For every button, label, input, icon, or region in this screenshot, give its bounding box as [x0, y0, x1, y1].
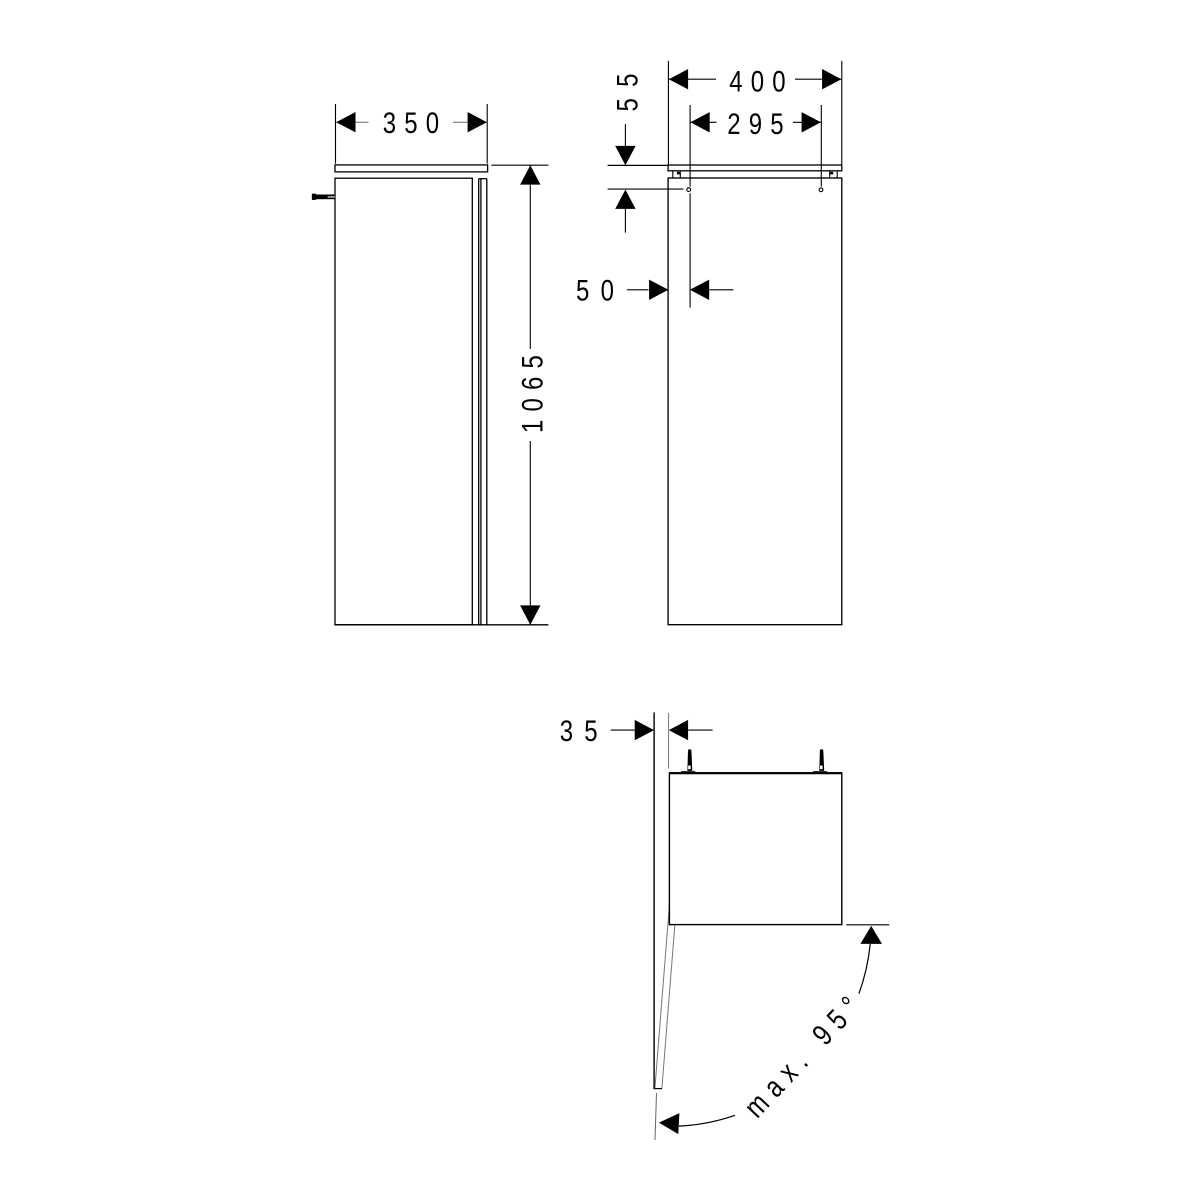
svg-text:400: 400 — [729, 64, 794, 98]
svg-text:295: 295 — [727, 106, 792, 140]
svg-text:35: 35 — [560, 713, 609, 747]
svg-text:55: 55 — [610, 62, 644, 111]
svg-text:50: 50 — [576, 273, 625, 307]
svg-text:350: 350 — [383, 105, 448, 139]
svg-text:1065: 1065 — [515, 347, 549, 433]
